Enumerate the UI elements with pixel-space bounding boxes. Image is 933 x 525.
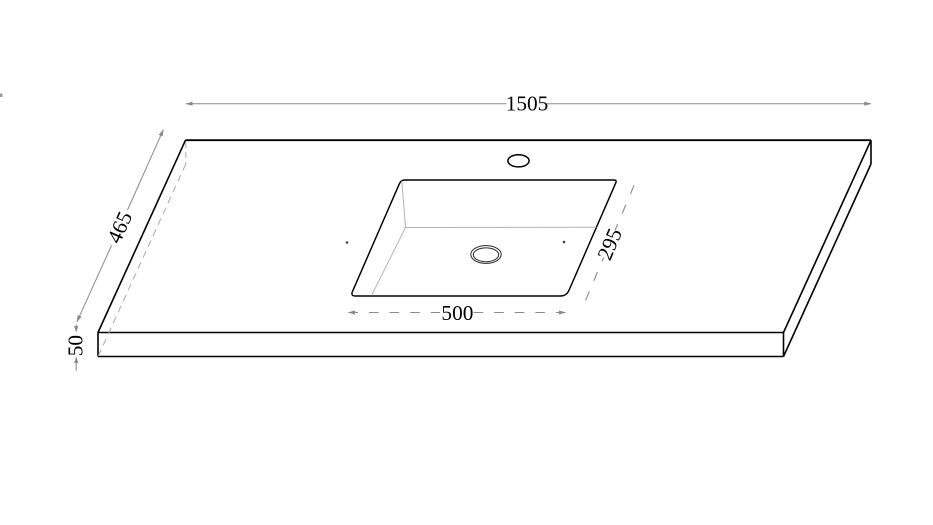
svg-text:1505: 1505 bbox=[506, 92, 549, 116]
svg-text:50: 50 bbox=[64, 335, 88, 356]
svg-text:500: 500 bbox=[441, 301, 473, 325]
